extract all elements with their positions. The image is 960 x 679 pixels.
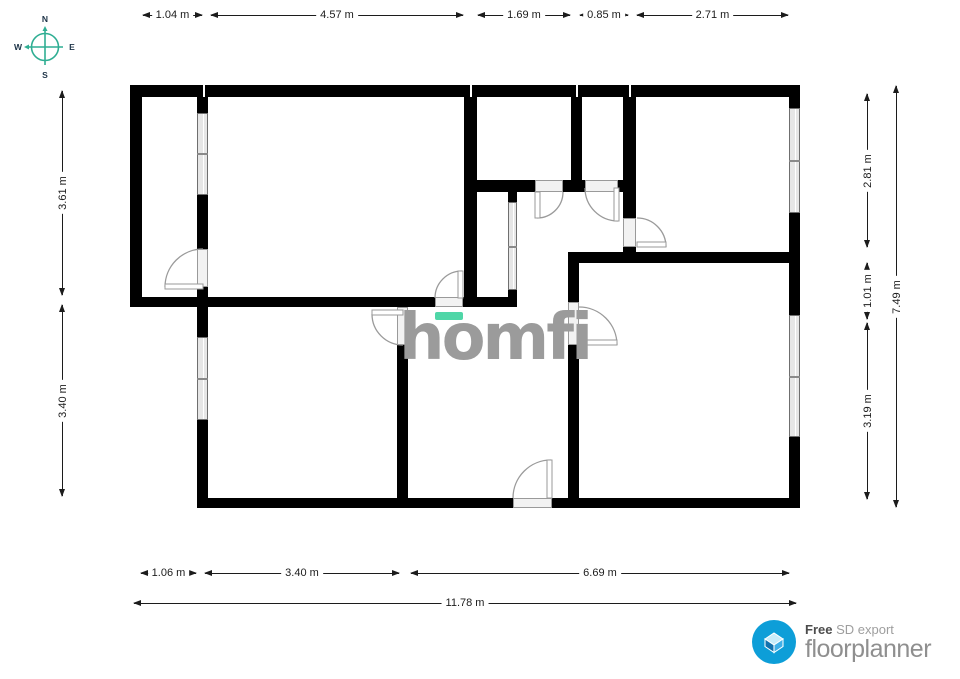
wall-joint: [576, 85, 578, 97]
dim-label: 3.40 m: [57, 380, 69, 422]
compass-rose: N S W E: [12, 12, 82, 88]
dim-left-2: 3.40 m: [56, 304, 70, 497]
door-leaf: [458, 271, 463, 298]
house-icon: [759, 627, 789, 657]
wall-segment: [464, 97, 477, 307]
door-arc: [513, 460, 551, 498]
compass-label-e: E: [69, 42, 75, 52]
door-arc: [537, 192, 563, 218]
dim-label: 6.69 m: [579, 567, 621, 579]
dim-top-5: 2.71 m: [636, 9, 789, 23]
door-sill: [197, 249, 208, 287]
dim-label: 1.06 m: [148, 567, 190, 579]
window-mullion: [508, 246, 517, 248]
dim-label: 3.61 m: [57, 172, 69, 214]
door-arc: [637, 218, 666, 247]
wall-joint: [203, 85, 205, 97]
floorplanner-logo: Free SD export floorplanner: [752, 620, 931, 664]
wall-segment: [197, 97, 208, 113]
wall-segment: [568, 252, 800, 263]
brand-name: floorplanner: [805, 637, 931, 662]
dim-label: 11.78 m: [442, 597, 489, 609]
homfi-accent-bar: [435, 312, 463, 320]
window-mullion: [197, 378, 208, 380]
dim-top-1: 1.04 m: [142, 9, 203, 23]
door-leaf: [637, 242, 666, 247]
homfi-watermark: homfi: [399, 306, 590, 370]
wall-segment: [197, 195, 208, 249]
dim-top-2: 4.57 m: [210, 9, 464, 23]
dim-label: 0.85 m: [583, 9, 625, 21]
dim-label: 1.69 m: [503, 9, 545, 21]
wall-bottom-exterior: [552, 498, 800, 508]
window-mullion: [789, 160, 800, 162]
window-mullion: [789, 376, 800, 378]
wall-right-exterior: [789, 213, 800, 315]
dim-left-1: 3.61 m: [56, 90, 70, 296]
dim-label: 2.81 m: [862, 150, 874, 192]
dim-label: 2.71 m: [692, 9, 734, 21]
dim-label: 4.57 m: [316, 9, 358, 21]
door-arc: [585, 188, 618, 221]
door-leaf: [547, 460, 552, 498]
wall-segment: [563, 180, 585, 192]
compass-label-n: N: [42, 14, 48, 24]
dim-bottom-2: 3.40 m: [204, 567, 400, 581]
dim-top-4: 0.85 m: [579, 9, 629, 23]
door-sill: [585, 180, 618, 192]
wall-segment: [130, 297, 435, 307]
dim-right-total: 7.49 m: [890, 85, 904, 508]
compass-label-s: S: [42, 70, 48, 80]
dim-label: 1.01 m: [862, 270, 874, 312]
dim-label: 3.40 m: [281, 567, 323, 579]
dim-bottom-3: 6.69 m: [410, 567, 790, 581]
dim-right-2: 1.01 m: [861, 262, 875, 320]
wall-left-exterior: [130, 97, 142, 307]
wall-joint: [470, 85, 472, 97]
wall-top-exterior: [130, 85, 800, 97]
wall-segment: [197, 420, 208, 508]
dim-top-3: 1.69 m: [477, 9, 571, 23]
door-arc: [435, 271, 462, 298]
dim-label: 7.49 m: [891, 276, 903, 318]
wall-segment: [623, 97, 636, 218]
entrance-door-sill: [513, 498, 552, 508]
compass-arrow-w: [24, 45, 29, 50]
compass-arrow-n: [43, 26, 48, 31]
dim-right-3: 3.19 m: [861, 322, 875, 500]
dim-bottom-1: 1.06 m: [140, 567, 197, 581]
compass-label-w: W: [14, 42, 23, 52]
door-leaf: [614, 188, 619, 221]
wall-segment: [571, 97, 582, 182]
floor-plan-export: N S W E: [0, 0, 960, 679]
dim-label: 3.19 m: [862, 390, 874, 432]
door-sill: [535, 180, 563, 192]
door-leaf: [535, 192, 540, 218]
floorplanner-text: Free SD export floorplanner: [805, 623, 931, 662]
dim-right-1: 2.81 m: [861, 93, 875, 248]
window-mullion: [197, 153, 208, 155]
wall-bottom-exterior: [197, 498, 513, 508]
dim-bottom-total: 11.78 m: [133, 597, 797, 611]
wall-segment: [197, 287, 208, 337]
wall-right-exterior: [789, 97, 800, 108]
floorplanner-icon: [752, 620, 796, 664]
dim-label: 1.04 m: [152, 9, 194, 21]
wall-segment: [618, 180, 636, 192]
door-sill: [623, 218, 636, 247]
wall-segment: [477, 180, 535, 192]
wall-joint: [629, 85, 631, 97]
